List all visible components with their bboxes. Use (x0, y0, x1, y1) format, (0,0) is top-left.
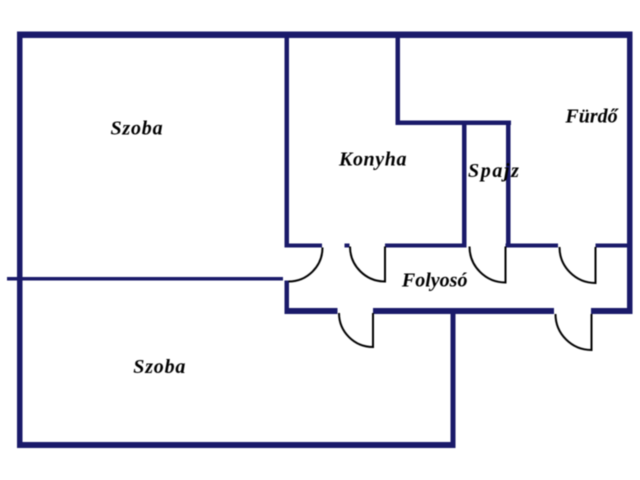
svg-text:Folyosó: Folyosó (401, 269, 468, 291)
svg-text:Konyha: Konyha (338, 149, 407, 171)
svg-text:Szoba: Szoba (111, 118, 164, 140)
svg-text:Szoba: Szoba (133, 356, 186, 378)
svg-text:Fürdő: Fürdő (564, 106, 619, 128)
svg-text:Spajz: Spajz (468, 160, 520, 182)
